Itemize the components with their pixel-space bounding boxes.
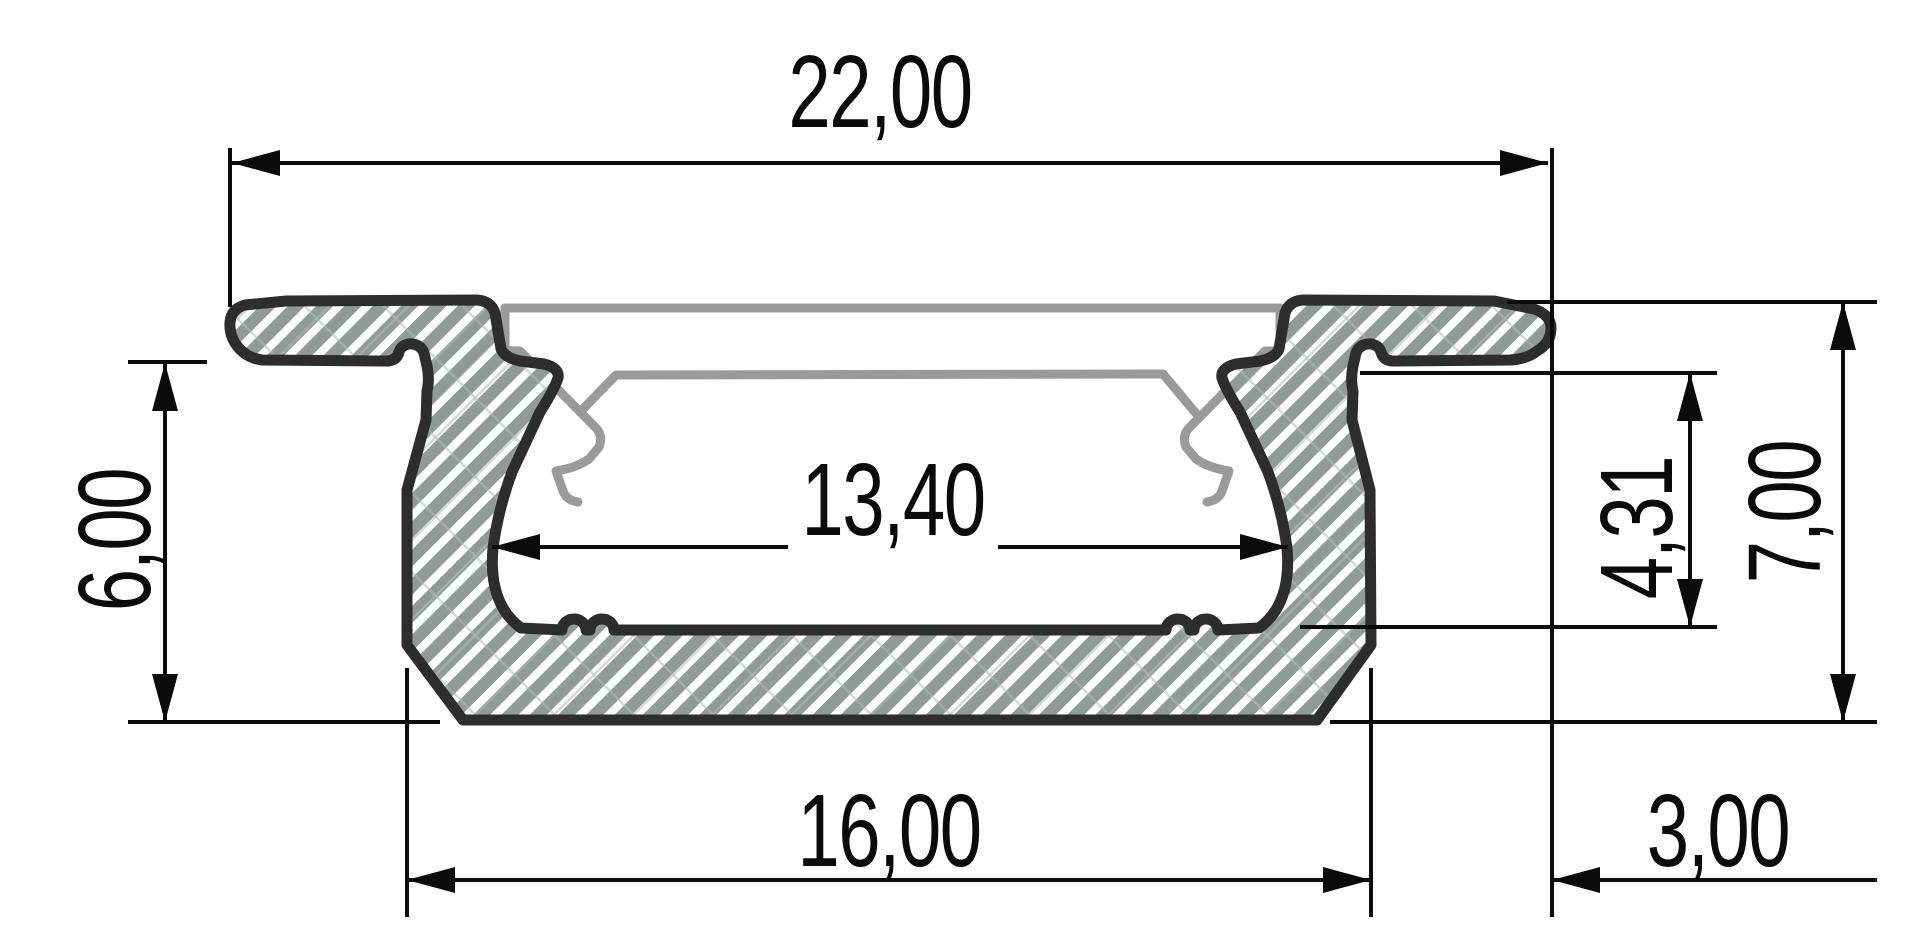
cover-bottom-edge [580, 374, 1199, 417]
arrowhead [232, 150, 280, 176]
dim-body-height: 6,00 [58, 362, 440, 722]
dim-label-inner-width: 13,40 [801, 443, 984, 558]
dim-label-overall-width: 22,00 [788, 35, 971, 150]
dim-label-body-height: 6,00 [58, 469, 173, 611]
arrowhead [1552, 867, 1600, 893]
arrowhead [1830, 674, 1856, 722]
dim-label-inner-depth: 4,31 [1580, 457, 1695, 599]
arrowhead [1500, 150, 1548, 176]
dim-flange-overhang: 3,00 [1552, 774, 1877, 893]
profile-cross-section-drawing: 22,00 13,40 16,00 3,00 [0, 0, 1920, 939]
technical-drawing-canvas: 22,00 13,40 16,00 3,00 [0, 0, 1920, 939]
dim-inner-width: 13,40 [492, 443, 1288, 560]
dim-label-body-width: 16,00 [797, 774, 980, 889]
arrowhead [407, 867, 455, 893]
arrowhead [152, 363, 178, 411]
arrowhead [1830, 302, 1856, 350]
arrowhead [152, 674, 178, 722]
dim-label-flange-overhang: 3,00 [1647, 774, 1789, 889]
arrowhead [1677, 373, 1703, 421]
arrowhead [1323, 867, 1371, 893]
dimensions: 22,00 13,40 16,00 3,00 [58, 35, 1877, 917]
dim-label-overall-height: 7,00 [1728, 441, 1843, 583]
